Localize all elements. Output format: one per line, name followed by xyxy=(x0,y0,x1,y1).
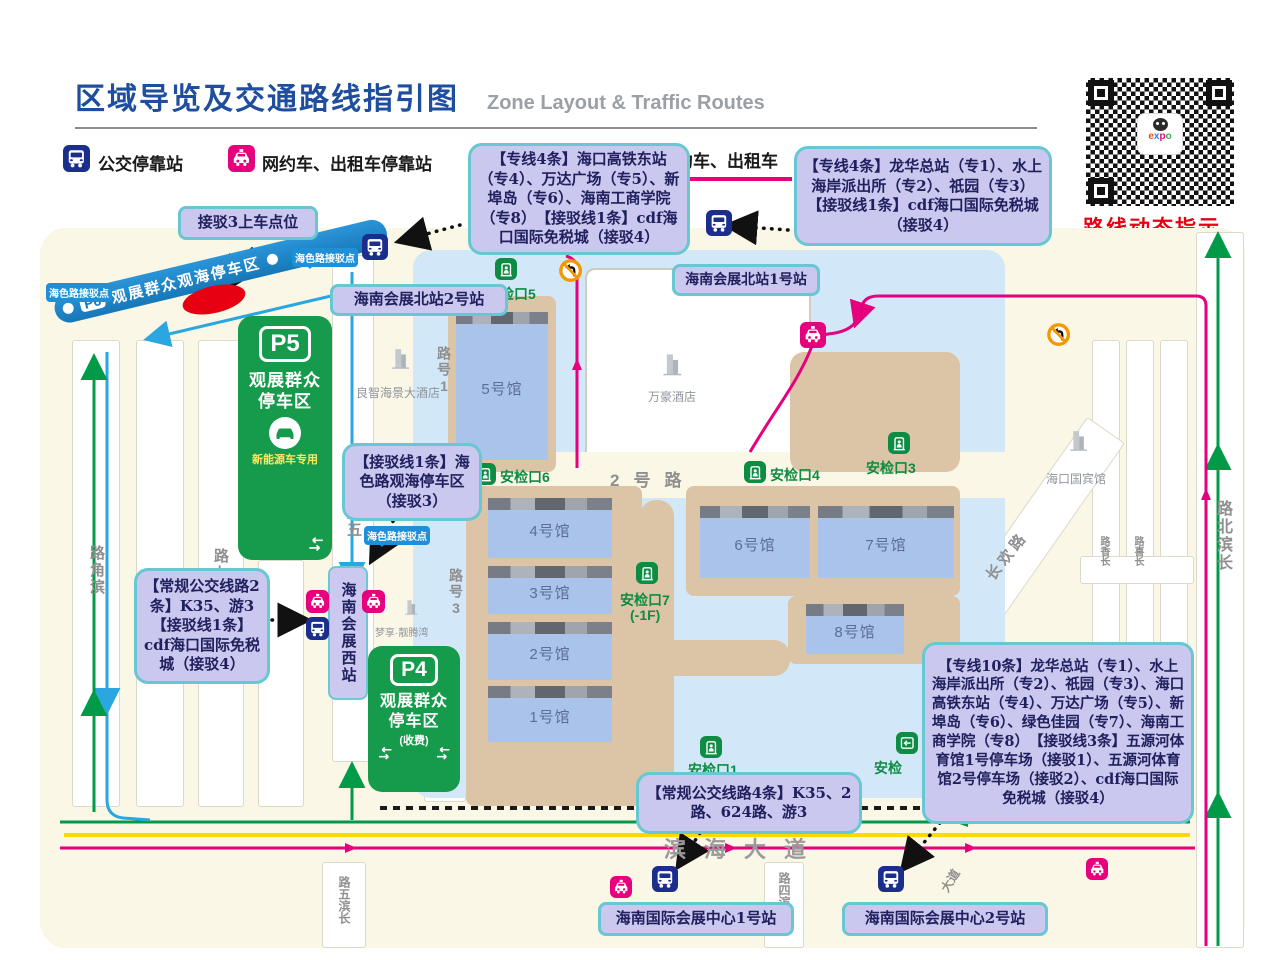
road-label-changbin5: 路五滨长 xyxy=(336,876,353,924)
hotel-wanhao-label: 万豪酒店 xyxy=(648,388,696,405)
bus-stop-icon xyxy=(362,234,388,260)
p5-badge: P5 xyxy=(259,326,310,362)
zone-traffic-map: 区域导览及交通路线指引图 Zone Layout & Traffic Route… xyxy=(0,0,1280,960)
hall-6: 6号馆 xyxy=(700,506,810,578)
hall-5: 5号馆 xyxy=(456,312,548,460)
bus-stop-icon xyxy=(652,866,678,892)
hall-4: 4号馆 xyxy=(488,498,612,558)
p4-badge: P4 xyxy=(390,654,438,686)
two-way-arrow-icon xyxy=(374,742,396,764)
road-label-changxiang: 路香长 xyxy=(1096,536,1111,566)
callout-intl-station2: 海南国际会展中心2号站 xyxy=(842,902,1048,936)
security-gate-icon xyxy=(636,562,658,584)
security-gate-icon xyxy=(700,736,722,758)
hotel-liangzhi-label: 良智海景大酒店 xyxy=(356,384,440,401)
two-way-arrow-icon xyxy=(432,742,454,764)
hall-8: 8号馆 xyxy=(806,604,904,654)
hall-2: 2号馆 xyxy=(488,622,612,680)
security-gate-icon xyxy=(495,258,517,280)
taxi-dropoff-icon xyxy=(800,322,826,348)
parking-p5: P5 观展群众 停车区 新能源车专用 xyxy=(238,316,332,560)
road-label-binjiao: 路角滨 xyxy=(86,545,107,596)
expo-logo-text: expo xyxy=(1138,131,1182,142)
callout-lines-longhua4: 【专线4条】龙华总站（专1）、水上海岸派出所（专2）、祇园（专3）【接驳线1条】… xyxy=(794,146,1052,246)
road-changxi xyxy=(1126,340,1154,662)
checkpoint-6-label: 安检口6 xyxy=(500,467,550,487)
legend-pink-line xyxy=(672,177,792,181)
security-gate-icon xyxy=(888,432,910,454)
callout-lines-south10: 【专线10条】龙华总站（专1）、水上海岸派出所（专2）、祇园（专3）、海口高铁东… xyxy=(922,642,1194,824)
callout-shuttle-haiselu: 【接驳线1条】海色路观海停车区（接驳3） xyxy=(342,443,482,521)
checkpoint-7-floor: (-1F) xyxy=(630,607,660,623)
callout-lines-east4: 【专线4条】海口高铁东站（专4）、万达广场（专5）、新埠岛（专6）、海南工商学院… xyxy=(468,143,690,255)
bus-stop-icon xyxy=(306,617,329,640)
checkpoint-4-label: 安检口4 xyxy=(770,465,820,485)
building-icon xyxy=(400,596,422,618)
hotel-guobin-label: 海口国宾馆 xyxy=(1046,470,1106,487)
banner-endcap xyxy=(266,252,279,265)
legend-fragment: 约车、出租车 xyxy=(676,147,778,172)
west-station-box: 海南会展西站 xyxy=(328,566,368,700)
callout-north-station1: 海南会展北站1号站 xyxy=(672,264,820,296)
road-label-no2: 2号路 xyxy=(610,466,695,491)
no-left-turn-icon xyxy=(556,256,586,286)
haiselu-shuttle-tag: 海色路接驳点 xyxy=(364,526,430,545)
road-label-changbinbei: 路北滨长 xyxy=(1210,500,1234,572)
road-label-no1: 路号1 xyxy=(434,346,454,396)
title-rule xyxy=(75,127,1037,129)
mengxiang-label: 梦享·靓腾湾 xyxy=(375,624,428,639)
north-annex-block xyxy=(790,352,960,472)
haiselu-shuttle-tag: 海色路接驳点 xyxy=(46,283,112,302)
page-subtitle: Zone Layout & Traffic Routes xyxy=(487,92,765,115)
callout-pickup3: 接驳3上车点位 xyxy=(178,206,318,240)
callout-bus-west2: 【常规公交线路2条】K35、游3 【接驳线1条】cdf海口国际免税城（接驳4） xyxy=(134,568,270,684)
haiselu-shuttle-tag: 海色路接驳点 xyxy=(292,248,358,267)
taxi-stop-icon xyxy=(610,876,632,898)
road-changbinbei xyxy=(1196,232,1244,948)
callout-north-station2: 海南会展北站2号站 xyxy=(330,284,508,316)
link-walkway xyxy=(660,640,790,676)
checkpoint-2-label: 安检 xyxy=(874,758,902,778)
building-icon xyxy=(656,348,688,380)
wanhao-parcel xyxy=(585,268,811,472)
callout-intl-station1: 海南国际会展中心1号站 xyxy=(598,902,794,936)
hall-7: 7号馆 xyxy=(818,506,954,578)
taxi-stop-icon xyxy=(1086,858,1108,880)
taxi-stop-legend-icon xyxy=(228,145,255,172)
bus-stop-icon xyxy=(706,210,732,236)
bus-stop-icon xyxy=(878,866,904,892)
two-way-arrow-icon xyxy=(304,532,328,556)
road-label-changxi: 路喜长 xyxy=(1130,536,1145,566)
road-changxiang xyxy=(1092,340,1120,662)
building-icon xyxy=(386,344,416,374)
hall-1: 1号馆 xyxy=(488,686,612,742)
callout-bus-south4: 【常规公交线路4条】K35、2路、624路、游3 xyxy=(636,772,862,834)
road-label-no3: 路号3 xyxy=(446,568,466,618)
checkpoint-3-label: 安检口3 xyxy=(866,458,916,478)
expo-logo: expo xyxy=(1137,113,1183,155)
ev-car-icon xyxy=(269,417,301,449)
bus-stop-legend-icon xyxy=(63,145,90,172)
road-label-binhai: 滨海大道 xyxy=(664,832,824,864)
taxi-stop-icon xyxy=(306,590,329,613)
legend-taxi-label: 网约车、出租车停靠站 xyxy=(262,150,432,175)
road-lane xyxy=(1160,340,1188,662)
exit-gate-icon xyxy=(896,732,918,754)
no-left-turn-icon xyxy=(1044,320,1074,350)
legend-bus-label: 公交停靠站 xyxy=(98,150,183,175)
expo-face-icon xyxy=(1153,118,1168,131)
hall-3: 3号馆 xyxy=(488,566,612,614)
building-icon xyxy=(1064,426,1094,456)
qr-code: expo xyxy=(1086,78,1234,206)
page-title: 区域导览及交通路线指引图 xyxy=(75,74,459,118)
taxi-stop-icon xyxy=(362,590,385,613)
security-gate-icon xyxy=(744,461,766,483)
parking-p4: P4 观展群众 停车区 (收费) xyxy=(368,646,460,792)
